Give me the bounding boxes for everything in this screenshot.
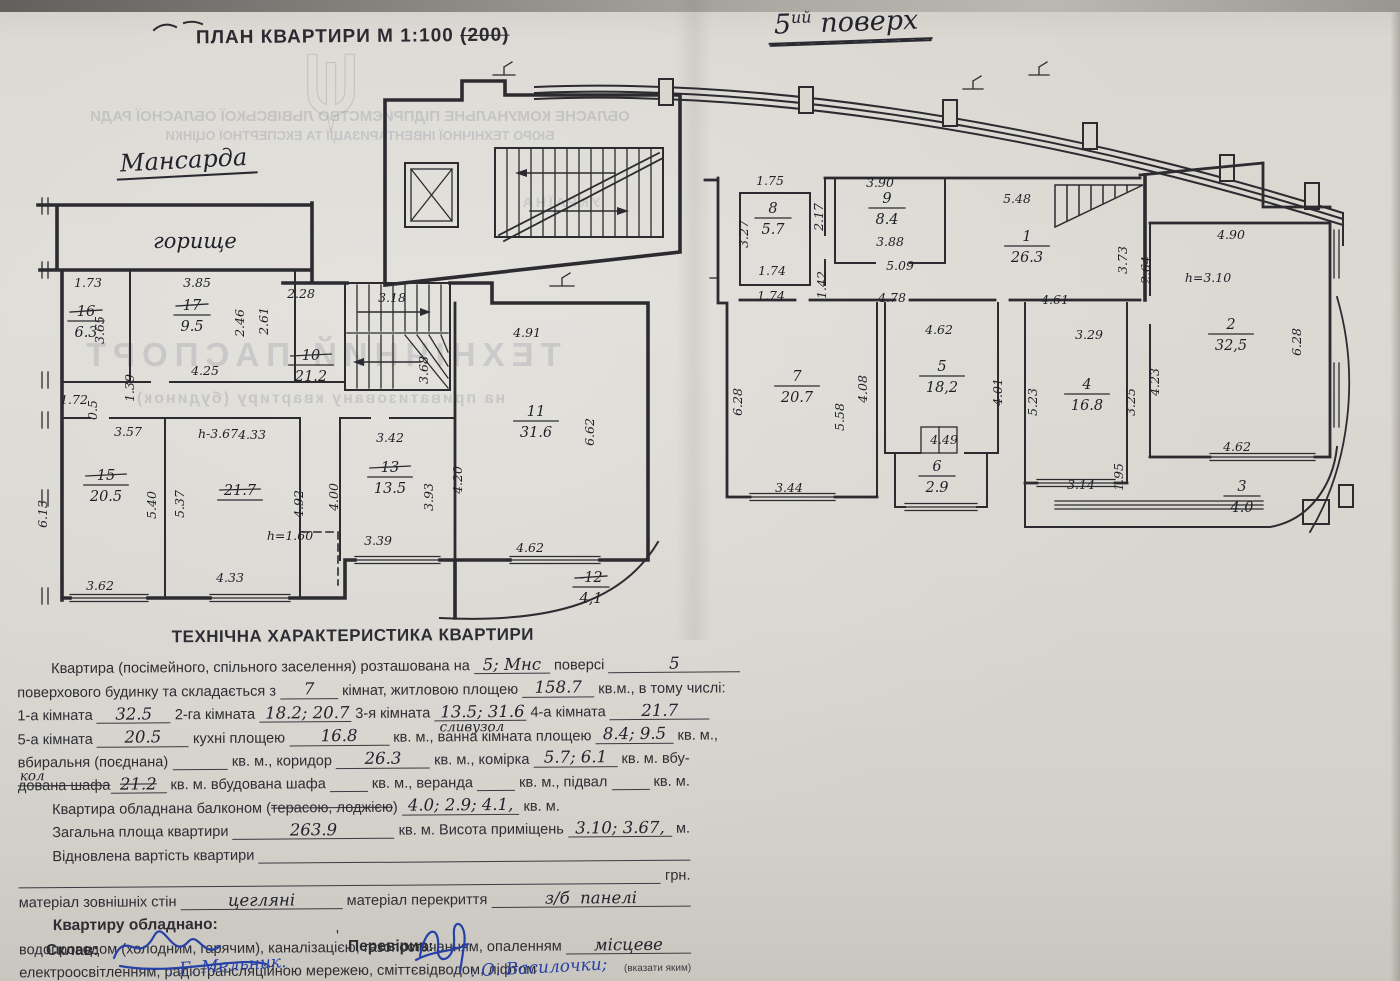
dim-label: 6.28: [730, 388, 745, 416]
printed-text: м.: [672, 821, 690, 837]
dim-label: 6.62: [582, 418, 597, 446]
printed-text: кухні площею: [189, 730, 289, 747]
room-number: 10: [302, 348, 320, 364]
dim-label: 4.62: [924, 322, 953, 337]
scanned-sheet: ОБЛАСНЕ КОМУНАЛЬНЕ ПІДПРИЄМСТВО ЛЬВІВСЬК…: [0, 0, 1400, 981]
room-number: 13: [381, 460, 399, 476]
dim-label: 4.33: [237, 427, 266, 442]
printed-text: 5-а кімната: [17, 731, 96, 748]
dim-label: 1.72: [60, 392, 88, 407]
printed-text: Відновлена вартість квартири: [52, 847, 258, 864]
floor-note-handwritten: 5ий поверх: [767, 3, 932, 45]
room-area: 32,5: [1215, 338, 1247, 354]
printed-text: кв. м.,: [673, 727, 718, 743]
dim-label: 3.68: [416, 356, 431, 384]
printed-text: 3-я кімната: [351, 706, 434, 723]
dim-label: 4.91: [512, 325, 541, 340]
dim-label: 5.09: [886, 258, 914, 273]
blank-underline: [477, 777, 515, 791]
room-area: 2.9: [924, 480, 948, 496]
room-number: 11: [527, 404, 545, 420]
room-area: 21.2: [294, 369, 327, 385]
dim-label: 3.39: [364, 533, 392, 548]
printed-text: 2-га кімната: [171, 707, 260, 724]
dim-label: 1.95: [1111, 463, 1126, 491]
mansard-note-handwritten: Мансарда: [115, 142, 258, 180]
signature-block: Склав: : Г. Мельник. ' Перевірив: : О. В…: [18, 926, 698, 981]
printed-text: кв. м.: [649, 774, 690, 790]
printed-text: матеріал перекриття: [343, 892, 492, 909]
handwritten-value: 32.5: [97, 706, 171, 724]
printed-text: кв.м., в тому числі:: [594, 680, 725, 697]
dim-label: 5.37: [172, 490, 187, 518]
handwritten-value: 26.3: [336, 751, 430, 769]
handwritten-note: сливузол: [439, 719, 504, 735]
printed-text: кв. м. вбудована шафа: [166, 777, 330, 794]
room-area: 16.8: [1071, 398, 1103, 414]
made-by-label: Склав:: [46, 942, 98, 960]
dim-label: 1.75: [756, 173, 784, 188]
dim-label: 4.62: [515, 540, 544, 555]
handwritten-value: 5: [608, 655, 740, 673]
room-number: 3: [1237, 479, 1246, 495]
handwritten-value: 7: [280, 681, 338, 699]
printed-text-struck: терасою, лоджією: [271, 799, 393, 816]
dim-label: 3.44: [775, 480, 803, 495]
printed-text: 4-а кімната: [526, 704, 610, 721]
printed-text: кв. м.,: [389, 729, 438, 745]
printed-text: кв. м.: [519, 798, 560, 814]
dim-label: 3.18: [378, 290, 406, 305]
handwritten-value: 21.7: [610, 702, 710, 720]
handwritten-value: 8.4; 9.5: [595, 726, 673, 744]
dim-label: 3.73: [1115, 246, 1130, 274]
form-heading: ТЕХНІЧНА ХАРАКТЕРИСТИКА КВАРТИРИ: [17, 624, 689, 649]
dim-label: 6.28: [1289, 328, 1304, 356]
printed-text: Загальна площа квартири: [52, 824, 232, 841]
room-area: 4,1: [578, 591, 602, 607]
dim-label: 0.5: [85, 400, 100, 420]
dim-label: 3.62: [86, 578, 114, 593]
dim-label: h-3.67: [198, 426, 238, 441]
room-area: 9.5: [180, 319, 203, 335]
dim-label: 3.29: [1075, 327, 1103, 342]
printed-text: кв. м., веранда: [368, 775, 477, 792]
printed-text: поверхового будинку та складається з: [17, 683, 280, 701]
handwritten-value: 20.5: [97, 729, 189, 747]
blank-underline: [172, 756, 228, 770]
room-number: 15: [97, 468, 115, 484]
dim-label: 5.58: [832, 403, 847, 431]
room-area: 31.6: [520, 425, 552, 441]
room-area: 6.3: [74, 325, 97, 341]
printed-text: кв. м., коридор: [228, 753, 336, 770]
room-area: 4.0: [1229, 500, 1253, 516]
dim-label: 4.90: [1216, 227, 1245, 242]
dim-label: 3.93: [421, 483, 436, 511]
dim-label: 3.42: [376, 430, 404, 445]
dim-label: 3.85: [183, 275, 211, 290]
room-area: 20.7: [780, 390, 814, 406]
dim-label: 3.27: [736, 220, 751, 248]
dim-label: 4.01: [990, 378, 1005, 407]
dim-label: 2.46: [232, 309, 247, 338]
room-number: 8: [768, 201, 777, 217]
room-area: 26.3: [1010, 250, 1043, 266]
room-number: 7: [792, 369, 802, 385]
trident-emblem-bleed: [303, 52, 359, 136]
dim-label: 5.48: [1003, 191, 1031, 206]
dim-label: 3.90: [866, 175, 894, 190]
dim-label: 2.61: [256, 307, 271, 336]
dim-label: 2.28: [286, 286, 315, 301]
printed-text: ): [393, 799, 402, 815]
dim-label: 4.23: [1147, 368, 1162, 397]
handwritten-value: 263.9: [232, 821, 394, 840]
mansard-plan: горище 1.733.852.283.652.462.614.251.391…: [0, 190, 690, 655]
room-area: 20.5: [89, 489, 122, 505]
room-area: 8.4: [875, 212, 898, 228]
printed-text: матеріал зовнішніх стін: [19, 895, 181, 912]
printed-text: кв. м. вбу-: [617, 751, 689, 768]
dim-label: 3.25: [1123, 388, 1138, 416]
dim-label: 4.33: [215, 570, 244, 585]
blank-underline: [330, 778, 368, 792]
printed-text: кв. м. Висота приміщень: [394, 822, 568, 839]
handwritten-value: 4.0; 2.9; 4.1,: [402, 797, 520, 815]
dim-label: 1.74: [757, 288, 785, 303]
dim-label: h=3.10: [1185, 270, 1231, 285]
room-area: 18,2: [926, 380, 958, 396]
printed-text: кв. м., підвал: [515, 775, 612, 792]
dim-label: 4.25: [190, 363, 219, 378]
handwritten-value: 158.7: [522, 680, 594, 698]
dim-label: 1.74: [758, 263, 786, 278]
room-area: 13.5: [374, 481, 406, 497]
dim-label: 4.92: [291, 490, 306, 519]
handwritten-value: 18.2; 20.7: [259, 705, 351, 723]
room-number: 4: [1081, 377, 1091, 393]
dim-label: 1.73: [74, 275, 102, 290]
room-number: 9: [882, 191, 891, 207]
printed-text: кв. м., комірка: [430, 752, 534, 769]
dim-label: 2.17: [811, 203, 826, 232]
dim-label: 4.62: [1222, 439, 1251, 454]
pen-scribble: [146, 14, 226, 40]
struck-scale: (200): [460, 25, 510, 46]
handwritten-value: 3.10; 3.67,: [568, 819, 672, 837]
dim-label: 4.78: [877, 290, 906, 305]
handwritten-value: 16.8: [289, 728, 389, 746]
apostrophe-mark: ': [336, 928, 339, 946]
dim-label: 5.40: [144, 491, 159, 519]
printed-text: Квартира обладнана балконом (: [52, 800, 271, 818]
printed-text: кімнат, житловою площею: [338, 682, 522, 699]
handwritten-value: з/б панелі: [491, 889, 690, 908]
dim-label: 6.13: [35, 500, 50, 528]
dim-label: 4.49: [929, 432, 958, 447]
dim-label: 3.88: [876, 234, 904, 249]
dim-label: 4.61: [1040, 292, 1069, 307]
dim-label: 5.23: [1025, 388, 1040, 416]
room-number: 5: [937, 359, 946, 375]
printed-text: поверсі: [550, 658, 609, 674]
dim-label: 1.42: [814, 271, 829, 299]
handwritten-note: кол: [20, 769, 45, 785]
dim-label: 4.20: [450, 466, 465, 495]
dim-label: 2.64: [1138, 256, 1153, 285]
room-area: 21.7: [223, 483, 257, 499]
dim-label: 1.39: [122, 374, 137, 402]
dim-label: 3.57: [114, 424, 142, 439]
room-number: 1: [1022, 229, 1031, 245]
room-number: 2: [1225, 317, 1235, 333]
handwritten-value: цегляні: [181, 892, 343, 911]
attic-label: горище: [153, 229, 237, 253]
dim-label: 3.14: [1067, 477, 1095, 492]
handwritten-value-struck: 21.2: [110, 776, 166, 794]
dim-label: 4.00: [326, 483, 341, 512]
dim-label: 4.08: [855, 375, 870, 404]
printed-text: грн.: [661, 868, 691, 884]
room-area: 5.7: [761, 222, 785, 238]
dim-label: h=1.60: [267, 528, 313, 543]
printed-text: 1-а кімната: [17, 708, 96, 725]
room-number: 6: [932, 459, 941, 475]
scan-edge-right: [1390, 0, 1400, 981]
handwritten-value: 5.7; 6.1: [533, 750, 617, 768]
blank-underline: [611, 776, 649, 790]
handwritten-value: 5; Мнс: [474, 657, 550, 675]
